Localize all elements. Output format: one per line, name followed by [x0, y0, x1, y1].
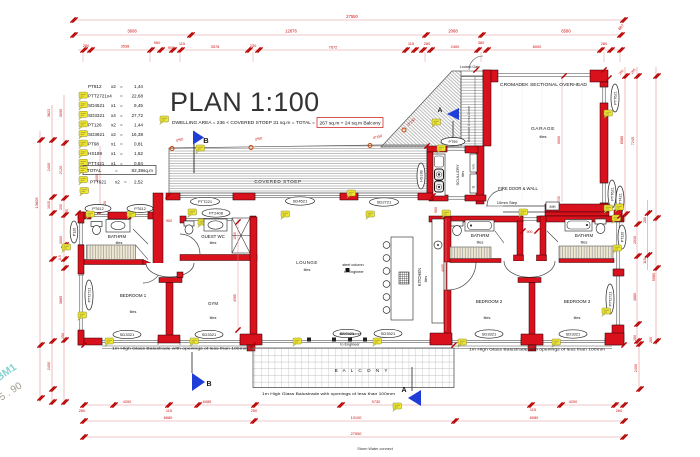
svg-text:0,81: 0,81 — [134, 142, 143, 147]
svg-text:TOTAL: TOTAL — [87, 168, 102, 173]
svg-text:steel column: steel column — [339, 332, 360, 336]
svg-text:1,44: 1,44 — [134, 122, 143, 127]
svg-text:x1: x1 — [111, 151, 116, 156]
svg-text:PTT421: PTT421 — [88, 161, 105, 166]
svg-text:P126: P126 — [73, 228, 77, 236]
svg-text:260: 260 — [616, 408, 623, 413]
svg-text:FIRE DOOR & WALL: FIRE DOOR & WALL — [498, 186, 538, 191]
svg-text:x1: x1 — [111, 142, 116, 147]
svg-text:=: = — [120, 161, 123, 166]
svg-text:3885: 3885 — [59, 296, 63, 304]
svg-text:wm: wm — [472, 164, 476, 169]
svg-text:GUEST WC: GUEST WC — [201, 234, 225, 239]
svg-text:2400: 2400 — [47, 362, 51, 370]
svg-text:PT2408: PT2408 — [209, 211, 224, 216]
svg-text:3885: 3885 — [633, 293, 637, 301]
svg-text:280: 280 — [643, 217, 647, 223]
svg-text:1m High Glass Balustrade with: 1m High Glass Balustrade with openings o… — [112, 347, 248, 351]
svg-text:3822: 3822 — [47, 109, 51, 117]
svg-text:115: 115 — [530, 407, 536, 412]
svg-text:735: 735 — [65, 209, 69, 215]
svg-text:PLAN 1:100: PLAN 1:100 — [170, 87, 320, 117]
svg-text:8000: 8000 — [533, 44, 542, 49]
svg-text:1000: 1000 — [233, 232, 237, 240]
svg-text:Storm Water connect: Storm Water connect — [357, 447, 393, 451]
svg-text:tiles: tiles — [424, 276, 428, 283]
svg-text:115: 115 — [179, 41, 185, 46]
svg-text:6085: 6085 — [203, 399, 212, 404]
svg-text:PT126: PT126 — [88, 122, 102, 127]
svg-text:to Engineer: to Engineer — [340, 343, 360, 347]
svg-text:A: A — [438, 107, 443, 114]
svg-text:PTT621: PTT621 — [611, 187, 615, 201]
svg-text:B: B — [206, 381, 211, 388]
svg-text:2088: 2088 — [448, 29, 458, 34]
svg-text:B A L C O N Y: B A L C O N Y — [335, 368, 390, 373]
svg-text:=: = — [120, 142, 123, 147]
svg-text:900: 900 — [168, 45, 175, 50]
svg-text:=: = — [120, 103, 123, 108]
svg-text:3608: 3608 — [127, 29, 137, 34]
svg-text:4085: 4085 — [441, 264, 445, 272]
svg-text:5580: 5580 — [652, 273, 656, 281]
svg-text:x4: x4 — [111, 113, 116, 118]
svg-text:267 sq.m + 24 sq.m Balcony: 267 sq.m + 24 sq.m Balcony — [320, 121, 382, 126]
svg-text:=: = — [120, 84, 123, 89]
svg-text:280: 280 — [601, 41, 608, 46]
svg-text:Balustrade Access Above: Balustrade Access Above — [467, 106, 471, 142]
svg-text:HS189: HS189 — [420, 170, 424, 182]
svg-text:SCULLERY: SCULLERY — [455, 164, 460, 185]
svg-text:4200: 4200 — [123, 399, 132, 404]
svg-text:BEDROOM 3: BEDROOM 3 — [564, 299, 591, 304]
svg-text:x2: x2 — [111, 84, 116, 89]
svg-text:PT126: PT126 — [621, 232, 625, 243]
svg-text:4985: 4985 — [233, 294, 237, 302]
svg-text:KITCHEN: KITCHEN — [417, 268, 422, 286]
svg-text:10100: 10100 — [351, 415, 363, 420]
svg-text:900: 900 — [434, 207, 438, 213]
svg-text:3000: 3000 — [59, 236, 63, 244]
svg-text:CROMADEK SECTIONAL OVERHEAD: CROMADEK SECTIONAL OVERHEAD — [500, 82, 587, 87]
svg-text:SD3321: SD3321 — [566, 332, 581, 337]
svg-text:tiles: tiles — [461, 171, 465, 177]
svg-text:SD3321: SD3321 — [202, 332, 217, 337]
svg-text:SD3321: SD3321 — [482, 332, 497, 337]
svg-text:=: = — [120, 132, 123, 137]
svg-text:BEDROOM 2: BEDROOM 2 — [476, 299, 503, 304]
svg-text:280: 280 — [633, 335, 637, 341]
svg-text:115: 115 — [166, 408, 172, 413]
svg-text:2030: 2030 — [633, 236, 637, 244]
svg-text:PTT2721: PTT2721 — [88, 288, 92, 303]
svg-text:BATHRM: BATHRM — [575, 233, 594, 238]
svg-text:3538: 3538 — [121, 44, 130, 49]
svg-text:115: 115 — [58, 255, 62, 261]
svg-text:115: 115 — [408, 41, 414, 46]
svg-text:16,38: 16,38 — [132, 132, 144, 137]
svg-text:2400: 2400 — [47, 163, 51, 171]
svg-text:PT612: PT612 — [134, 206, 145, 211]
svg-text:27550: 27550 — [346, 14, 358, 19]
svg-text:tiles: tiles — [484, 316, 491, 320]
svg-text:1,62: 1,62 — [134, 151, 143, 156]
svg-text:7245: 7245 — [631, 137, 635, 145]
svg-text:SD4521: SD4521 — [88, 103, 105, 108]
svg-text:=: = — [120, 151, 123, 156]
svg-text:6000: 6000 — [557, 136, 561, 144]
svg-text:SD3921: SD3921 — [88, 132, 105, 137]
svg-text:=: = — [120, 113, 123, 118]
svg-text:6585: 6585 — [620, 136, 624, 144]
svg-text:255: 255 — [59, 204, 63, 210]
svg-text:PT98: PT98 — [88, 142, 99, 147]
svg-text:2400: 2400 — [634, 364, 638, 372]
svg-text:260: 260 — [79, 408, 86, 413]
svg-text:1015: 1015 — [47, 201, 51, 209]
svg-text:tiles: tiles — [581, 241, 588, 245]
svg-text:250: 250 — [251, 408, 258, 413]
svg-text:13805: 13805 — [34, 197, 39, 209]
svg-text:=: = — [120, 94, 123, 99]
svg-text:LOUNGE: LOUNGE — [296, 260, 318, 265]
svg-text:900: 900 — [166, 219, 172, 223]
svg-text:250: 250 — [61, 333, 65, 339]
svg-text:1,44: 1,44 — [134, 84, 143, 89]
svg-text:GYM: GYM — [208, 301, 218, 306]
svg-text:22,68: 22,68 — [132, 94, 144, 99]
svg-text:tiles: tiles — [130, 310, 137, 314]
svg-text:B: B — [203, 136, 209, 145]
svg-text:280: 280 — [83, 43, 90, 48]
svg-text:2120: 2120 — [59, 166, 63, 174]
svg-text:tiles: tiles — [116, 241, 123, 245]
svg-text:0,84: 0,84 — [134, 161, 143, 166]
svg-text:tiles: tiles — [477, 241, 484, 245]
svg-text:x1: x1 — [111, 161, 116, 166]
svg-text:SD3921: SD3921 — [381, 331, 396, 336]
svg-text:27550: 27550 — [351, 431, 363, 436]
svg-text:PTT221: PTT221 — [198, 199, 213, 204]
svg-text:8080: 8080 — [530, 415, 539, 420]
svg-text:tiles: tiles — [539, 134, 546, 139]
svg-text:280: 280 — [424, 41, 431, 46]
svg-text:SD3321: SD3321 — [120, 332, 135, 337]
svg-text:3090: 3090 — [59, 109, 63, 117]
svg-text:x2: x2 — [115, 180, 120, 185]
svg-text:9,45: 9,45 — [134, 103, 143, 108]
svg-text:PT612: PT612 — [92, 206, 103, 211]
svg-text:HS189: HS189 — [88, 151, 102, 156]
svg-text:tiles: tiles — [210, 316, 217, 320]
svg-text:4200: 4200 — [569, 399, 578, 404]
svg-text:12876: 12876 — [285, 29, 297, 34]
svg-text:SD4521: SD4521 — [293, 199, 308, 204]
svg-text:tiles: tiles — [574, 316, 581, 320]
svg-text:PT99: PT99 — [448, 140, 457, 144]
svg-text:x2: x2 — [111, 132, 116, 137]
svg-text:8680: 8680 — [164, 415, 173, 420]
svg-text:MH: MH — [550, 205, 556, 209]
svg-text:=: = — [120, 122, 123, 127]
svg-text:9730: 9730 — [372, 399, 381, 404]
svg-text:10mm Step: 10mm Step — [497, 200, 518, 205]
svg-text:PTT2721x4: PTT2721x4 — [88, 94, 112, 99]
svg-text:GARAGE: GARAGE — [531, 126, 555, 132]
svg-text:BATHRM: BATHRM — [471, 233, 490, 238]
svg-text:PTT621: PTT621 — [614, 91, 618, 105]
svg-text:A: A — [401, 387, 406, 394]
svg-text:x2: x2 — [111, 122, 116, 127]
svg-text:tiles: tiles — [210, 241, 217, 245]
svg-text:PTT2721: PTT2721 — [609, 292, 613, 307]
svg-text:900: 900 — [527, 230, 533, 234]
svg-text:230: 230 — [250, 43, 257, 48]
svg-text:960: 960 — [154, 40, 161, 45]
svg-text:6580: 6580 — [561, 29, 571, 34]
svg-text:2,52: 2,52 — [134, 180, 143, 185]
svg-text:7672: 7672 — [329, 45, 338, 50]
svg-text:BATHRM: BATHRM — [108, 234, 127, 239]
svg-text:SD3321: SD3321 — [88, 113, 105, 118]
svg-text:2400: 2400 — [451, 44, 460, 49]
svg-text:steel column: steel column — [342, 263, 363, 267]
svg-text:td: td — [472, 185, 476, 188]
svg-text:SD2721: SD2721 — [377, 200, 392, 205]
svg-text:27,72: 27,72 — [132, 113, 144, 118]
svg-text:3578: 3578 — [211, 44, 220, 49]
svg-text:x1: x1 — [111, 103, 116, 108]
svg-text:COVERED STOEP: COVERED STOEP — [254, 179, 301, 184]
svg-text:1m High Glass Balustrade with: 1m High Glass Balustrade with openings o… — [469, 348, 605, 352]
svg-text:=: = — [115, 168, 118, 173]
svg-text:PT812: PT812 — [88, 84, 102, 89]
svg-text:280: 280 — [649, 337, 653, 343]
svg-text:380: 380 — [478, 40, 485, 45]
svg-text:PTT621: PTT621 — [90, 180, 107, 185]
svg-text:DWELLING AREA = 236 < COVERED: DWELLING AREA = 236 < COVERED STOEP 31 s… — [172, 120, 316, 125]
svg-text:82,38sq.m: 82,38sq.m — [132, 168, 154, 173]
svg-text:BEDROOM 1: BEDROOM 1 — [120, 293, 147, 298]
svg-text:tiles: tiles — [304, 268, 311, 272]
svg-text:1m High Glass Balustrade with: 1m High Glass Balustrade with openings o… — [262, 392, 395, 396]
svg-text:115: 115 — [643, 258, 647, 264]
svg-text:=: = — [124, 180, 127, 185]
